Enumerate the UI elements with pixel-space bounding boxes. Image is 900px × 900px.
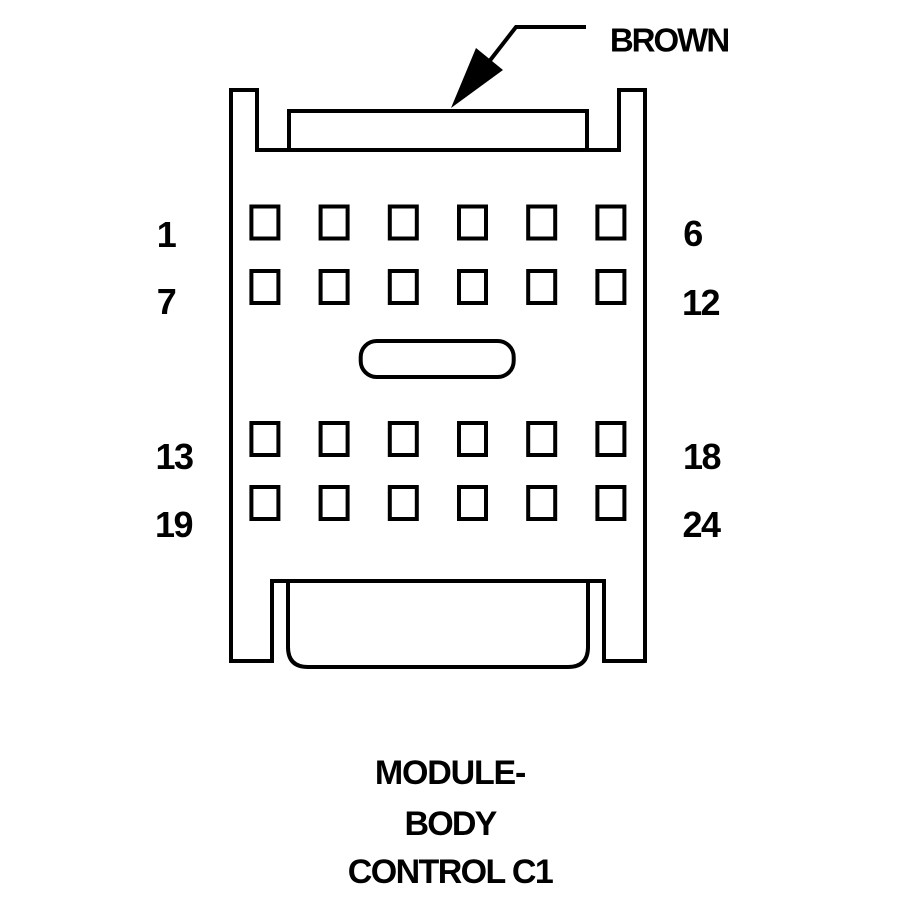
svg-text:13: 13 — [155, 436, 193, 477]
svg-text:19: 19 — [155, 504, 193, 545]
svg-text:18: 18 — [683, 436, 721, 477]
svg-text:24: 24 — [682, 504, 721, 545]
svg-text:12: 12 — [682, 282, 720, 323]
svg-text:1: 1 — [157, 214, 177, 255]
svg-text:6: 6 — [683, 213, 702, 254]
svg-text:MODULE-: MODULE- — [375, 754, 525, 792]
svg-text:BROWN: BROWN — [610, 22, 728, 59]
svg-text:7: 7 — [157, 281, 176, 322]
svg-text:CONTROL C1: CONTROL C1 — [348, 853, 553, 891]
svg-text:BODY: BODY — [404, 805, 497, 843]
